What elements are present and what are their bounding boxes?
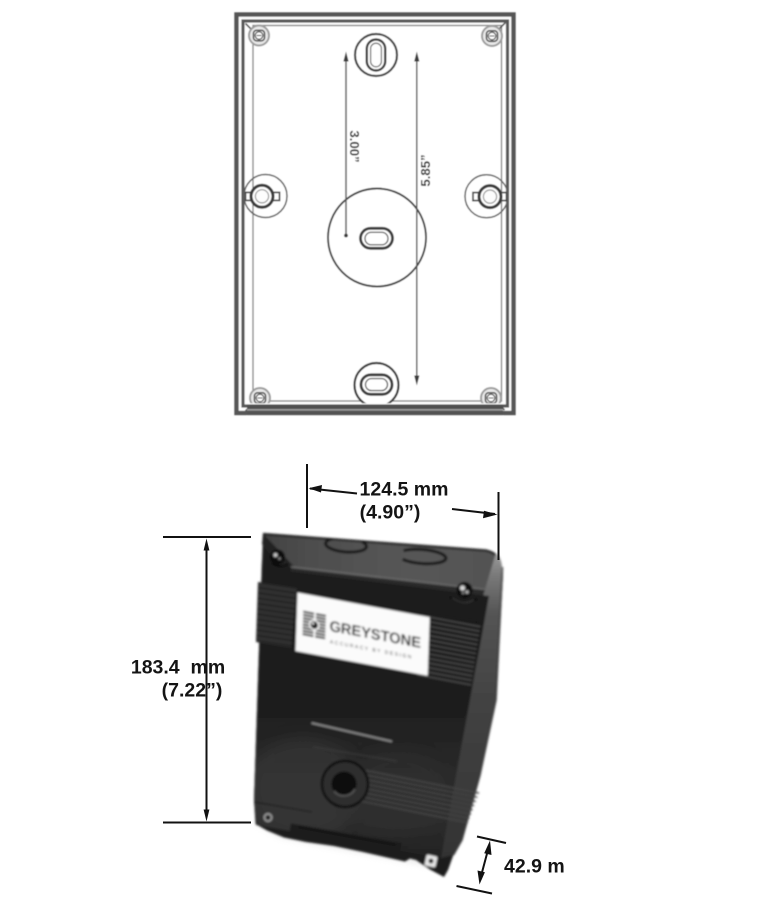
svg-text:42.9 m: 42.9 m bbox=[504, 856, 565, 878]
svg-text:3.00”: 3.00” bbox=[347, 130, 362, 162]
svg-text:124.5 mm: 124.5 mm bbox=[360, 479, 449, 501]
svg-text:(7.22”): (7.22”) bbox=[162, 680, 223, 702]
svg-text:5.85”: 5.85” bbox=[418, 154, 433, 186]
svg-text:(4.90”): (4.90”) bbox=[360, 502, 421, 524]
svg-text:183.4 mm: 183.4 mm bbox=[131, 657, 225, 679]
